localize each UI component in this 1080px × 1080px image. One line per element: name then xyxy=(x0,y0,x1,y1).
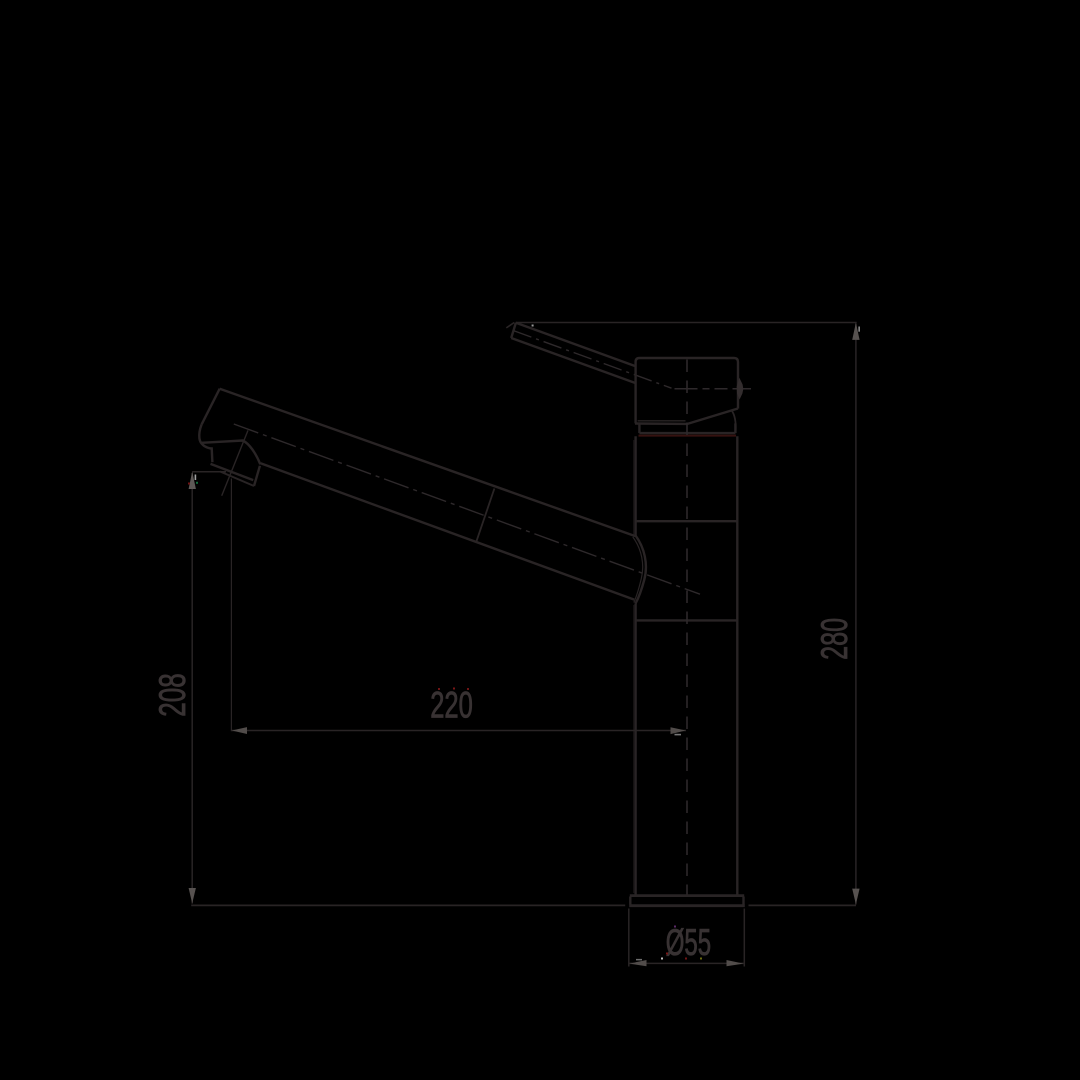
svg-text:280: 280 xyxy=(814,618,855,660)
svg-text:Ø55: Ø55 xyxy=(666,922,711,963)
svg-text:208: 208 xyxy=(152,673,193,716)
svg-text:220: 220 xyxy=(430,684,473,725)
